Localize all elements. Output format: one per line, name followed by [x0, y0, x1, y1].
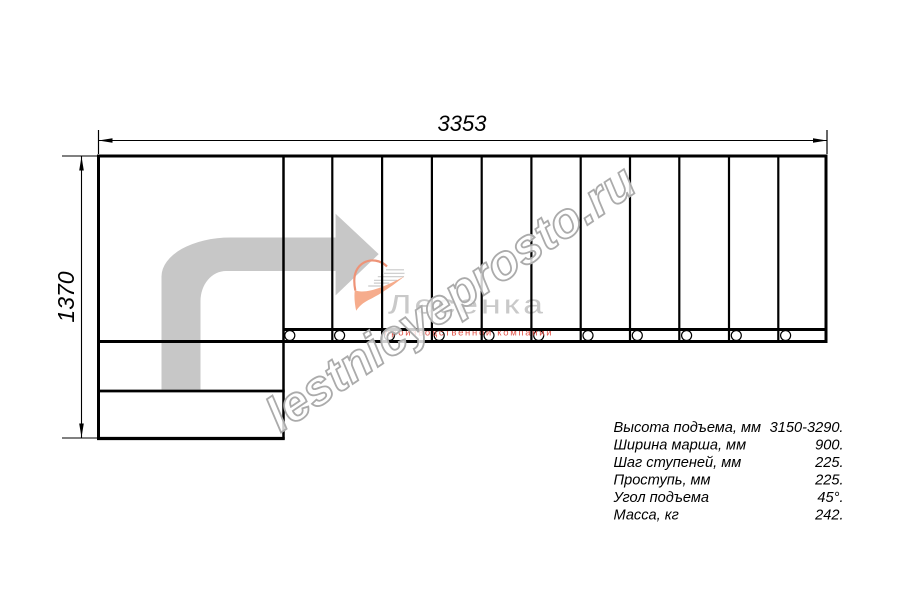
svg-text:Проступь, мм: Проступь, мм: [614, 473, 711, 489]
svg-text:Шаг ступеней, мм: Шаг ступеней, мм: [614, 455, 742, 471]
svg-text:lestnicyeprosto.ru: lestnicyeprosto.ru: [256, 154, 645, 442]
svg-text:Угол подъема: Угол подъема: [613, 490, 709, 506]
svg-text:3150-3290.: 3150-3290.: [770, 420, 844, 436]
svg-text:3353: 3353: [438, 111, 488, 136]
svg-text:225.: 225.: [814, 455, 843, 471]
svg-text:Высота подъема, мм: Высота подъема, мм: [614, 420, 762, 436]
svg-text:242.: 242.: [814, 508, 843, 524]
svg-text:45°.: 45°.: [817, 490, 843, 506]
svg-text:Ширина марша, мм: Ширина марша, мм: [614, 438, 747, 454]
svg-text:225.: 225.: [814, 473, 843, 489]
svg-text:1370: 1370: [53, 271, 79, 322]
svg-text:900.: 900.: [815, 438, 843, 454]
svg-text:Масса, кг: Масса, кг: [614, 508, 679, 524]
